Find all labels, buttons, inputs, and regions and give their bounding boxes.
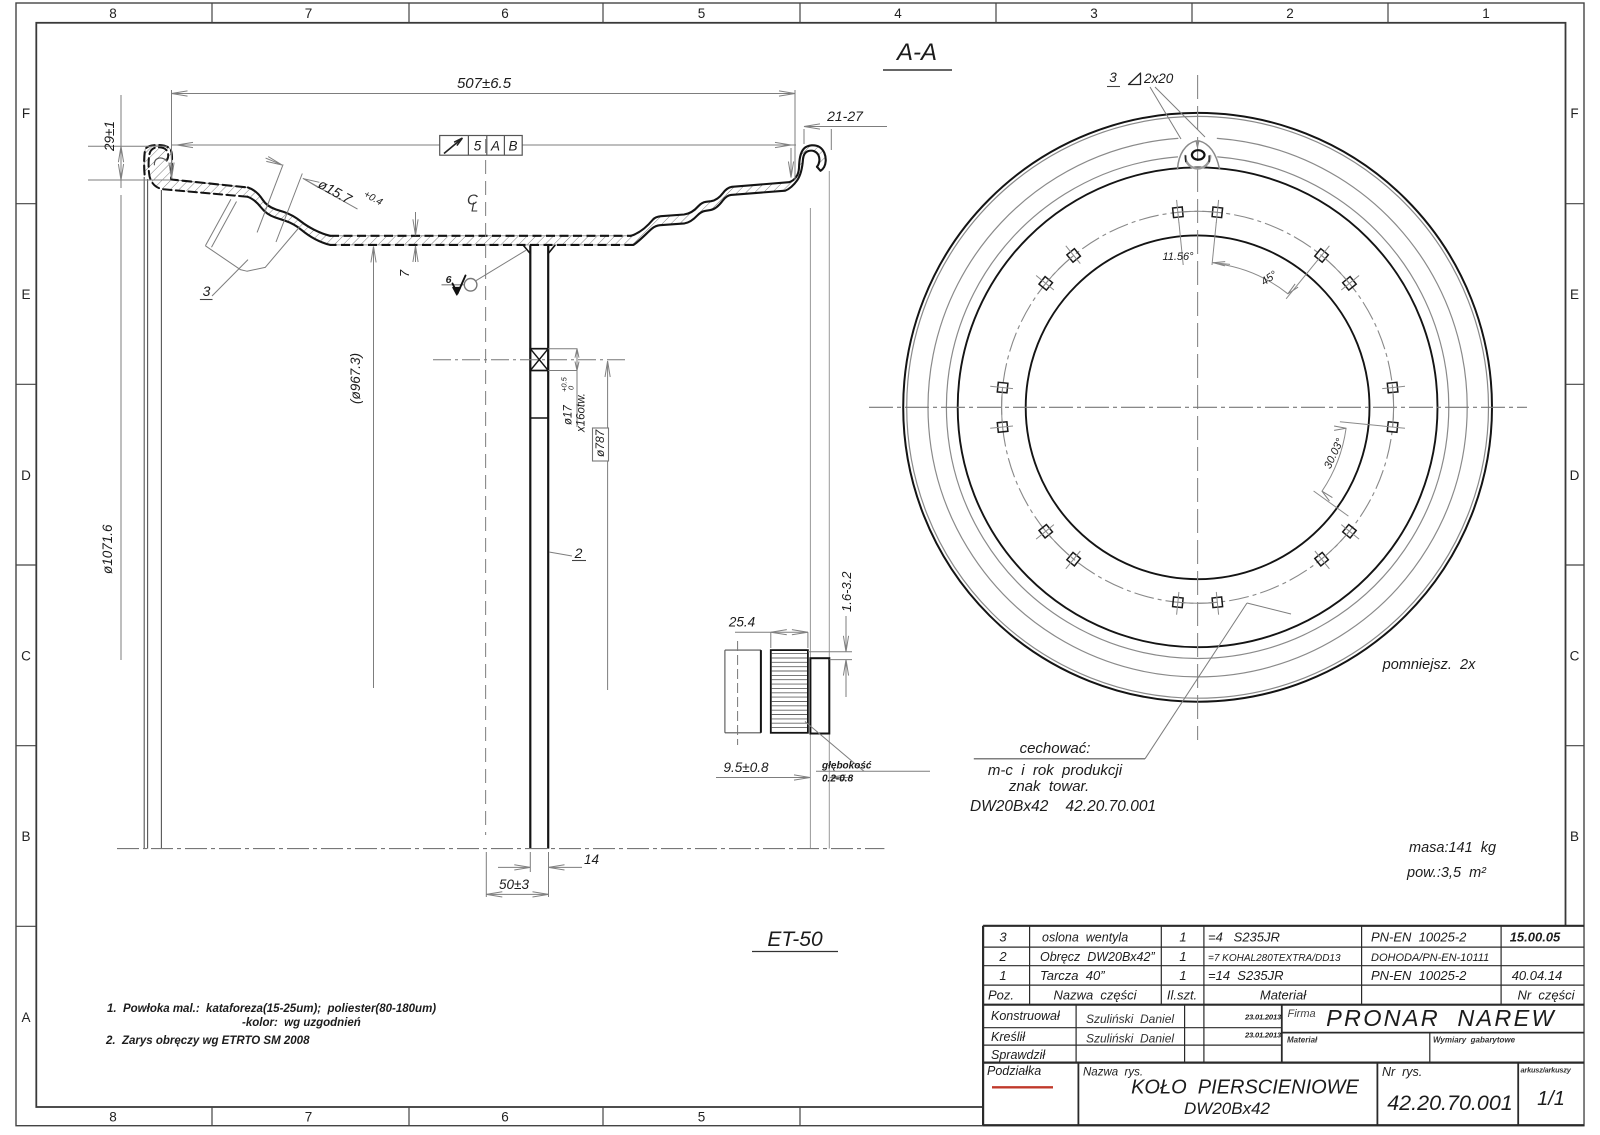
svg-text:x16otw.: x16otw.: [576, 393, 588, 433]
svg-text:DW20Bx42: DW20Bx42: [1184, 1099, 1271, 1118]
svg-text:ø1071.6: ø1071.6: [100, 524, 115, 574]
svg-text:Szuliński Daniel: Szuliński Daniel: [1086, 1012, 1174, 1026]
svg-text:C: C: [1570, 649, 1580, 664]
svg-text:Wymiary gabarytowe: Wymiary gabarytowe: [1433, 1036, 1516, 1045]
svg-text:L: L: [471, 200, 478, 215]
svg-text:E: E: [1570, 287, 1579, 302]
svg-text:Firma: Firma: [1288, 1008, 1316, 1020]
svg-text:1/1: 1/1: [1537, 1088, 1565, 1110]
svg-text:11.56°: 11.56°: [1162, 251, 1194, 263]
svg-text:arkusz/arkuszy: arkusz/arkuszy: [1521, 1066, 1572, 1075]
svg-text:PN-EN 10025-2: PN-EN 10025-2: [1371, 968, 1467, 983]
svg-text:PRONAR NAREW: PRONAR NAREW: [1326, 1005, 1556, 1031]
svg-text:7: 7: [397, 269, 412, 277]
svg-text:pomniejsz. 2x: pomniejsz. 2x: [1382, 657, 1476, 673]
svg-text:14: 14: [584, 852, 599, 867]
svg-text:1.6-3.2: 1.6-3.2: [839, 571, 854, 612]
svg-text:507±6.5: 507±6.5: [457, 75, 512, 92]
svg-text:F: F: [1570, 106, 1578, 121]
svg-text:5: 5: [474, 139, 482, 154]
svg-text:8: 8: [109, 6, 117, 21]
svg-text:Il.szt.: Il.szt.: [1167, 988, 1197, 1003]
svg-text:ø787: ø787: [593, 428, 607, 457]
svg-text:29±1: 29±1: [102, 121, 117, 152]
svg-text:Nr rys.: Nr rys.: [1382, 1065, 1422, 1079]
svg-text:50±3: 50±3: [499, 877, 529, 892]
svg-text:=14 S235JR: =14 S235JR: [1208, 968, 1284, 983]
svg-text:masa:141 kg: masa:141 kg: [1409, 840, 1496, 856]
svg-text:2x20: 2x20: [1143, 71, 1174, 86]
svg-text:42.20.70.001: 42.20.70.001: [1387, 1091, 1513, 1115]
svg-text:6: 6: [501, 6, 509, 21]
svg-text:B: B: [1570, 829, 1579, 844]
svg-text:1: 1: [1179, 968, 1186, 983]
svg-text:Tarcza 40”: Tarcza 40”: [1040, 968, 1105, 983]
svg-text:3: 3: [1090, 6, 1098, 21]
svg-text:1: 1: [1482, 6, 1490, 21]
svg-text:Poz.: Poz.: [988, 988, 1014, 1003]
svg-text:8: 8: [109, 1110, 117, 1125]
svg-text:2. Zarys obręczy wg ETRTO SM: 2. Zarys obręczy wg ETRTO SM 2008: [105, 1035, 310, 1047]
svg-text:2: 2: [1286, 6, 1294, 21]
svg-text:0.2-0.8: 0.2-0.8: [822, 774, 854, 785]
svg-text:23.01.2013: 23.01.2013: [1244, 1031, 1282, 1040]
svg-text:1: 1: [999, 968, 1006, 983]
svg-text:25.4: 25.4: [728, 615, 755, 630]
svg-text:=4 S235JR: =4 S235JR: [1208, 930, 1280, 945]
svg-text:głębokość: głębokość: [821, 761, 872, 772]
svg-text:A: A: [21, 1010, 30, 1025]
svg-text:znak towar.: znak towar.: [1008, 778, 1089, 795]
svg-text:KOŁO PIERSCIENIOWE: KOŁO PIERSCIENIOWE: [1131, 1077, 1359, 1099]
svg-text:A-A: A-A: [895, 39, 937, 66]
svg-text:5: 5: [698, 6, 706, 21]
svg-text:23.01.2013: 23.01.2013: [1244, 1013, 1282, 1022]
svg-text:D: D: [21, 468, 31, 483]
svg-text:=7 KOHAL280TEXTRA/DD13: =7 KOHAL280TEXTRA/DD13: [1208, 953, 1341, 964]
svg-text:PN-EN 10025-2: PN-EN 10025-2: [1371, 930, 1467, 945]
svg-text:DW20Bx42 42.20.70.001: DW20Bx42 42.20.70.001: [970, 798, 1156, 815]
svg-text:1. Powłoka mal.: kataforeza(: 1. Powłoka mal.: kataforeza(15-25um); po…: [107, 1003, 436, 1015]
svg-text:m-c i rok produkcji: m-c i rok produkcji: [988, 762, 1123, 779]
svg-text:oslona wentyla: oslona wentyla: [1042, 931, 1128, 945]
svg-text:D: D: [1570, 468, 1580, 483]
svg-text:2: 2: [998, 949, 1007, 964]
svg-text:ET-50: ET-50: [767, 928, 823, 951]
svg-text:Podziałka: Podziałka: [987, 1064, 1041, 1078]
svg-text:ø17: ø17: [563, 405, 575, 425]
svg-text:C: C: [21, 649, 31, 664]
svg-text:40.04.14: 40.04.14: [1512, 968, 1563, 983]
svg-text:B: B: [508, 139, 517, 154]
svg-text:1: 1: [1179, 930, 1186, 945]
svg-text:21-27: 21-27: [826, 108, 864, 124]
svg-text:4: 4: [894, 6, 902, 21]
svg-text:Sprawdził: Sprawdził: [991, 1048, 1046, 1062]
svg-text:cechować:: cechować:: [1020, 740, 1091, 757]
svg-text:5: 5: [698, 1110, 706, 1125]
svg-text:7: 7: [305, 6, 313, 21]
svg-text:9.5±0.8: 9.5±0.8: [724, 760, 769, 775]
svg-text:B: B: [21, 829, 30, 844]
svg-text:(ø967.3): (ø967.3): [348, 353, 363, 404]
svg-text:Nazwa części: Nazwa części: [1053, 988, 1137, 1003]
svg-text:Obręcz DW20Bx42”: Obręcz DW20Bx42”: [1040, 950, 1155, 964]
svg-text:E: E: [21, 287, 30, 302]
svg-text:Materiał: Materiał: [1287, 1036, 1318, 1045]
svg-text:-kolor: wg uzgodnień: -kolor: wg uzgodnień: [242, 1017, 361, 1029]
svg-text:F: F: [22, 106, 30, 121]
svg-text:Materiał: Materiał: [1260, 988, 1307, 1003]
svg-text:DOHODA/PN-EN-10111: DOHODA/PN-EN-10111: [1371, 952, 1489, 964]
svg-text:Szuliński Daniel: Szuliński Daniel: [1086, 1032, 1174, 1046]
svg-text:pow.:3,5 m²: pow.:3,5 m²: [1406, 865, 1487, 881]
svg-text:3: 3: [203, 283, 211, 299]
svg-text:6: 6: [501, 1110, 509, 1125]
svg-text:Nr części: Nr części: [1517, 988, 1575, 1003]
svg-text:A: A: [490, 139, 500, 154]
svg-text:15.00.05: 15.00.05: [1510, 930, 1561, 945]
svg-text:6: 6: [446, 274, 452, 286]
svg-text:3: 3: [1109, 70, 1117, 85]
svg-text:3: 3: [999, 930, 1007, 945]
svg-text:Konstruował: Konstruował: [991, 1009, 1061, 1023]
svg-text:2: 2: [574, 545, 583, 561]
svg-text:7: 7: [305, 1110, 313, 1125]
svg-text:1: 1: [1179, 949, 1186, 964]
svg-text:Kreślił: Kreślił: [991, 1030, 1026, 1044]
